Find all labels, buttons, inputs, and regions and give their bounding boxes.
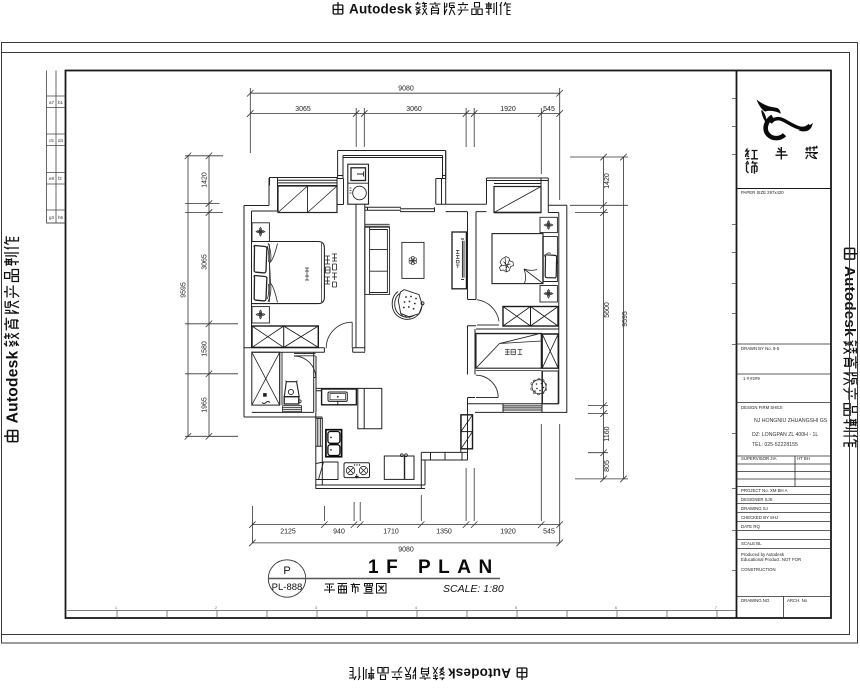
svg-text:5600: 5600 <box>604 302 611 318</box>
svg-text:545: 545 <box>543 106 555 113</box>
svg-text:3065: 3065 <box>202 254 209 270</box>
svg-text:a7: a7 <box>49 100 55 105</box>
svg-text:1 # #2#9: 1 # #2#9 <box>743 376 760 381</box>
svg-text:1920: 1920 <box>500 529 516 536</box>
svg-text:PL-888: PL-888 <box>272 582 303 593</box>
svg-text:805: 805 <box>604 460 611 472</box>
svg-text:DRAWING NO.: DRAWING NO. <box>741 598 770 603</box>
svg-text:HT BH: HT BH <box>797 456 810 461</box>
svg-text:SCALE: 1:80: SCALE: 1:80 <box>443 583 504 595</box>
svg-text:DATE RQ: DATE RQ <box>741 524 760 529</box>
svg-text:545: 545 <box>543 529 555 536</box>
svg-text:9595: 9595 <box>181 282 188 298</box>
svg-text:ARCH. No: ARCH. No <box>787 598 808 603</box>
svg-text:DZ: LONGPAN ZL 400H - 1L: DZ: LONGPAN ZL 400H - 1L <box>752 432 818 438</box>
svg-text:1965: 1965 <box>202 397 209 413</box>
svg-text:P: P <box>283 565 290 577</box>
svg-text:3: 3 <box>315 606 317 610</box>
svg-text:CHECKED BY SHJ: CHECKED BY SHJ <box>741 515 778 520</box>
svg-text:9595: 9595 <box>622 311 629 327</box>
svg-text:1160: 1160 <box>604 426 611 441</box>
svg-text:d4: d4 <box>58 138 64 143</box>
svg-text:5: 5 <box>515 606 517 610</box>
svg-text:1: 1 <box>115 606 117 610</box>
svg-text:1580: 1580 <box>202 341 209 357</box>
svg-text:PAPER SIZE 297x420: PAPER SIZE 297x420 <box>741 190 784 195</box>
svg-text:940: 940 <box>333 529 345 536</box>
svg-text:Educational Product. NOT FOR: Educational Product. NOT FOR <box>741 557 801 562</box>
svg-text:NJ HONGNIU ZHUANGSHI GS: NJ HONGNIU ZHUANGSHI GS <box>754 418 828 424</box>
svg-text:g3: g3 <box>49 215 55 220</box>
svg-text:7: 7 <box>715 606 717 610</box>
svg-text:2125: 2125 <box>280 529 296 536</box>
svg-text:1920: 1920 <box>500 106 516 113</box>
svg-text:2: 2 <box>215 606 217 610</box>
svg-text:4: 4 <box>415 606 417 610</box>
svg-text:1350: 1350 <box>436 529 452 536</box>
svg-text:DESIGNER SJS: DESIGNER SJS <box>741 497 773 502</box>
svg-text:3065: 3065 <box>295 106 311 113</box>
svg-text:1420: 1420 <box>202 172 209 188</box>
svg-text:PROJECT No. XM BH A: PROJECT No. XM BH A <box>741 488 788 493</box>
svg-text:h6: h6 <box>58 215 64 220</box>
svg-text:DESIGN FIRM SHEJI: DESIGN FIRM SHEJI <box>741 405 783 410</box>
svg-text:b1: b1 <box>58 100 64 105</box>
svg-text:3060: 3060 <box>406 106 422 113</box>
svg-text:6: 6 <box>615 606 617 610</box>
svg-text:c5: c5 <box>49 138 54 143</box>
svg-text:TEL: 025-52228155: TEL: 025-52228155 <box>752 442 798 448</box>
svg-text:CONSTRUCTION: CONSTRUCTION <box>741 567 776 572</box>
svg-text:f2: f2 <box>58 176 62 181</box>
svg-text:1F PLAN: 1F PLAN <box>368 557 500 578</box>
svg-text:e8: e8 <box>49 176 55 181</box>
svg-text:9080: 9080 <box>398 547 414 554</box>
svg-text:1420: 1420 <box>604 173 611 189</box>
svg-text:DRAWN BY No. 9-5: DRAWN BY No. 9-5 <box>741 346 780 351</box>
svg-text:1710: 1710 <box>383 529 399 536</box>
svg-text:SUPERVISOR JIA: SUPERVISOR JIA <box>741 456 777 461</box>
svg-text:DRAWING SJ: DRAWING SJ <box>741 506 768 511</box>
svg-text:9080: 9080 <box>398 86 414 93</box>
svg-text:SCALE BL: SCALE BL <box>741 541 762 546</box>
